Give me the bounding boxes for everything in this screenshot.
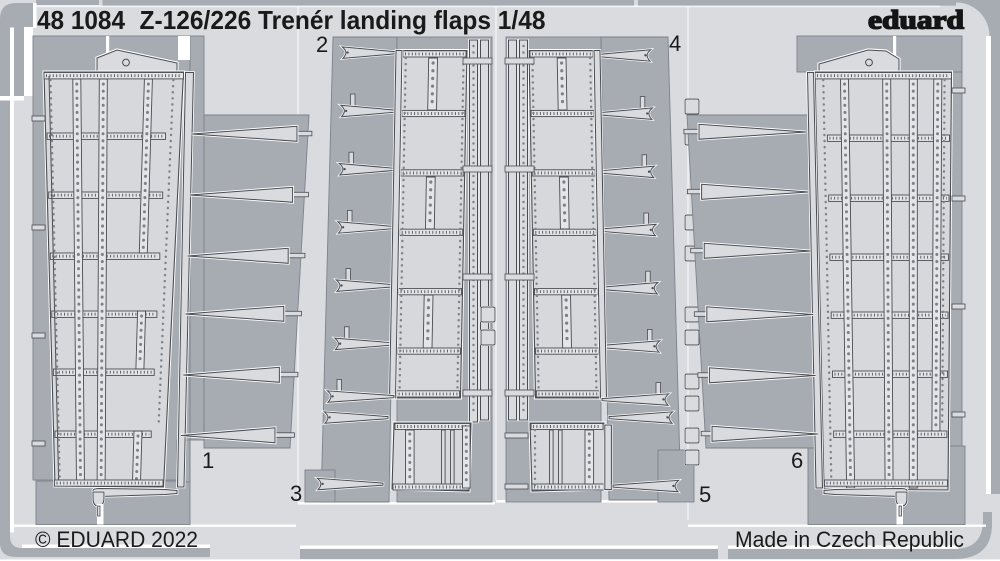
svg-text:Z-126/226 Trenér landing flaps: Z-126/226 Trenér landing flaps 1/48: [140, 5, 546, 35]
svg-text:eduard: eduard: [868, 5, 964, 35]
svg-text:1: 1: [202, 448, 214, 473]
svg-text:48 1084: 48 1084: [37, 5, 126, 35]
svg-text:5: 5: [699, 482, 711, 507]
svg-text:3: 3: [290, 481, 302, 506]
svg-text:4: 4: [669, 31, 681, 56]
svg-text:© EDUARD 2022: © EDUARD 2022: [35, 527, 198, 552]
svg-text:6: 6: [791, 448, 803, 473]
svg-text:Made in Czech Republic: Made in Czech Republic: [735, 527, 964, 552]
svg-text:2: 2: [316, 32, 328, 57]
